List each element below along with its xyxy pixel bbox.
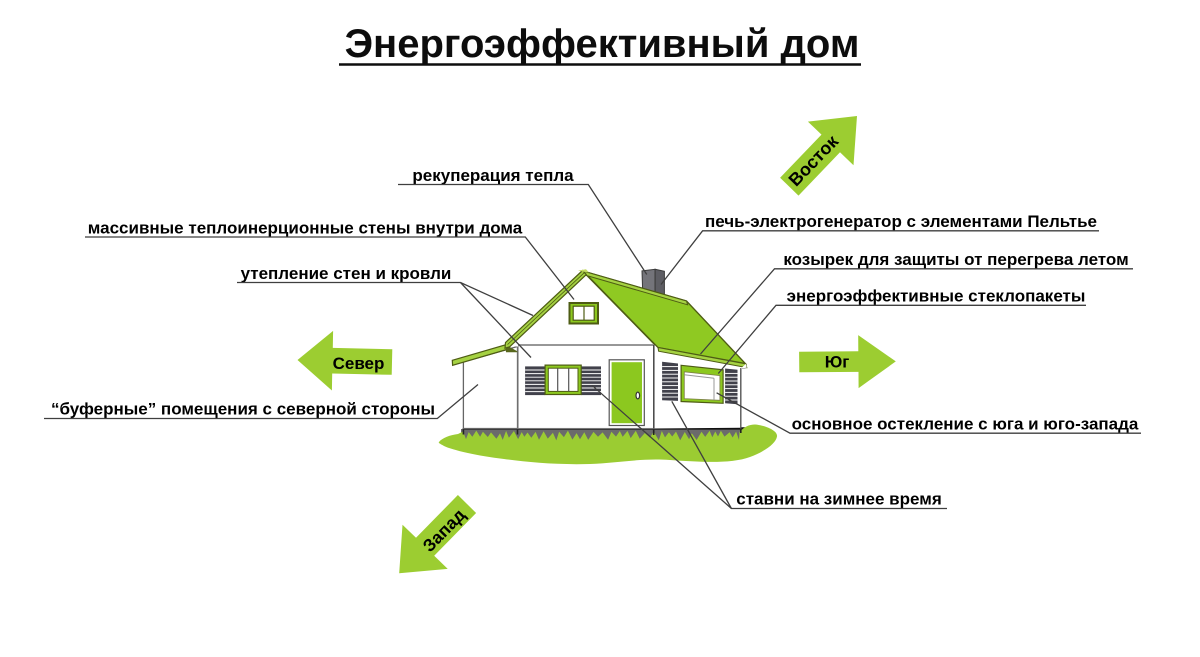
svg-text:козырек для защиты от перегрев: козырек для защиты от перегрева летом <box>783 250 1128 269</box>
svg-text:рекуперация тепла: рекуперация тепла <box>412 166 574 185</box>
svg-text:массивные теплоинерционные сте: массивные теплоинерционные стены внутри … <box>88 219 523 238</box>
svg-text:основное остекление с юга и юг: основное остекление с юга и юго-запада <box>792 415 1139 434</box>
svg-text:ставни на зимнее время: ставни на зимнее время <box>736 490 942 509</box>
svg-text:Энергоэффективный дом: Энергоэффективный дом <box>345 22 860 66</box>
svg-text:Восток: Восток <box>785 131 843 191</box>
svg-text:печь-электрогенератор с элемен: печь-электрогенератор с элементами Пельт… <box>705 212 1097 231</box>
svg-text:“буферные” помещения с северно: “буферные” помещения с северной стороны <box>51 400 435 419</box>
svg-text:энергоэффективные стеклопакеты: энергоэффективные стеклопакеты <box>787 287 1086 306</box>
svg-text:утепление стен и кровли: утепление стен и кровли <box>241 264 452 283</box>
svg-text:Север: Север <box>333 354 385 373</box>
svg-text:Юг: Юг <box>825 353 850 372</box>
